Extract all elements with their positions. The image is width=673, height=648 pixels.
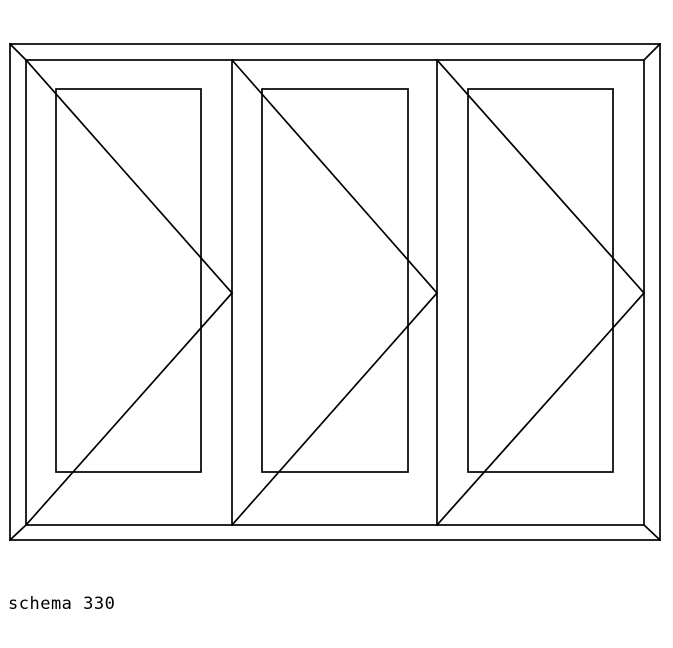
- glass-pane-2: [262, 89, 408, 472]
- corner-miter-line: [644, 525, 660, 540]
- corner-miter-line: [644, 44, 660, 60]
- window-schema-drawing: [0, 0, 673, 648]
- schema-caption: schema 330: [8, 594, 115, 614]
- inner-frame: [26, 60, 644, 525]
- glass-pane-1: [56, 89, 201, 472]
- corner-miter-line: [10, 525, 26, 540]
- corner-miter-line: [10, 44, 26, 60]
- outer-frame: [10, 44, 660, 540]
- glass-pane-3: [468, 89, 613, 472]
- schema-viewer-page: schema 330: [0, 0, 673, 648]
